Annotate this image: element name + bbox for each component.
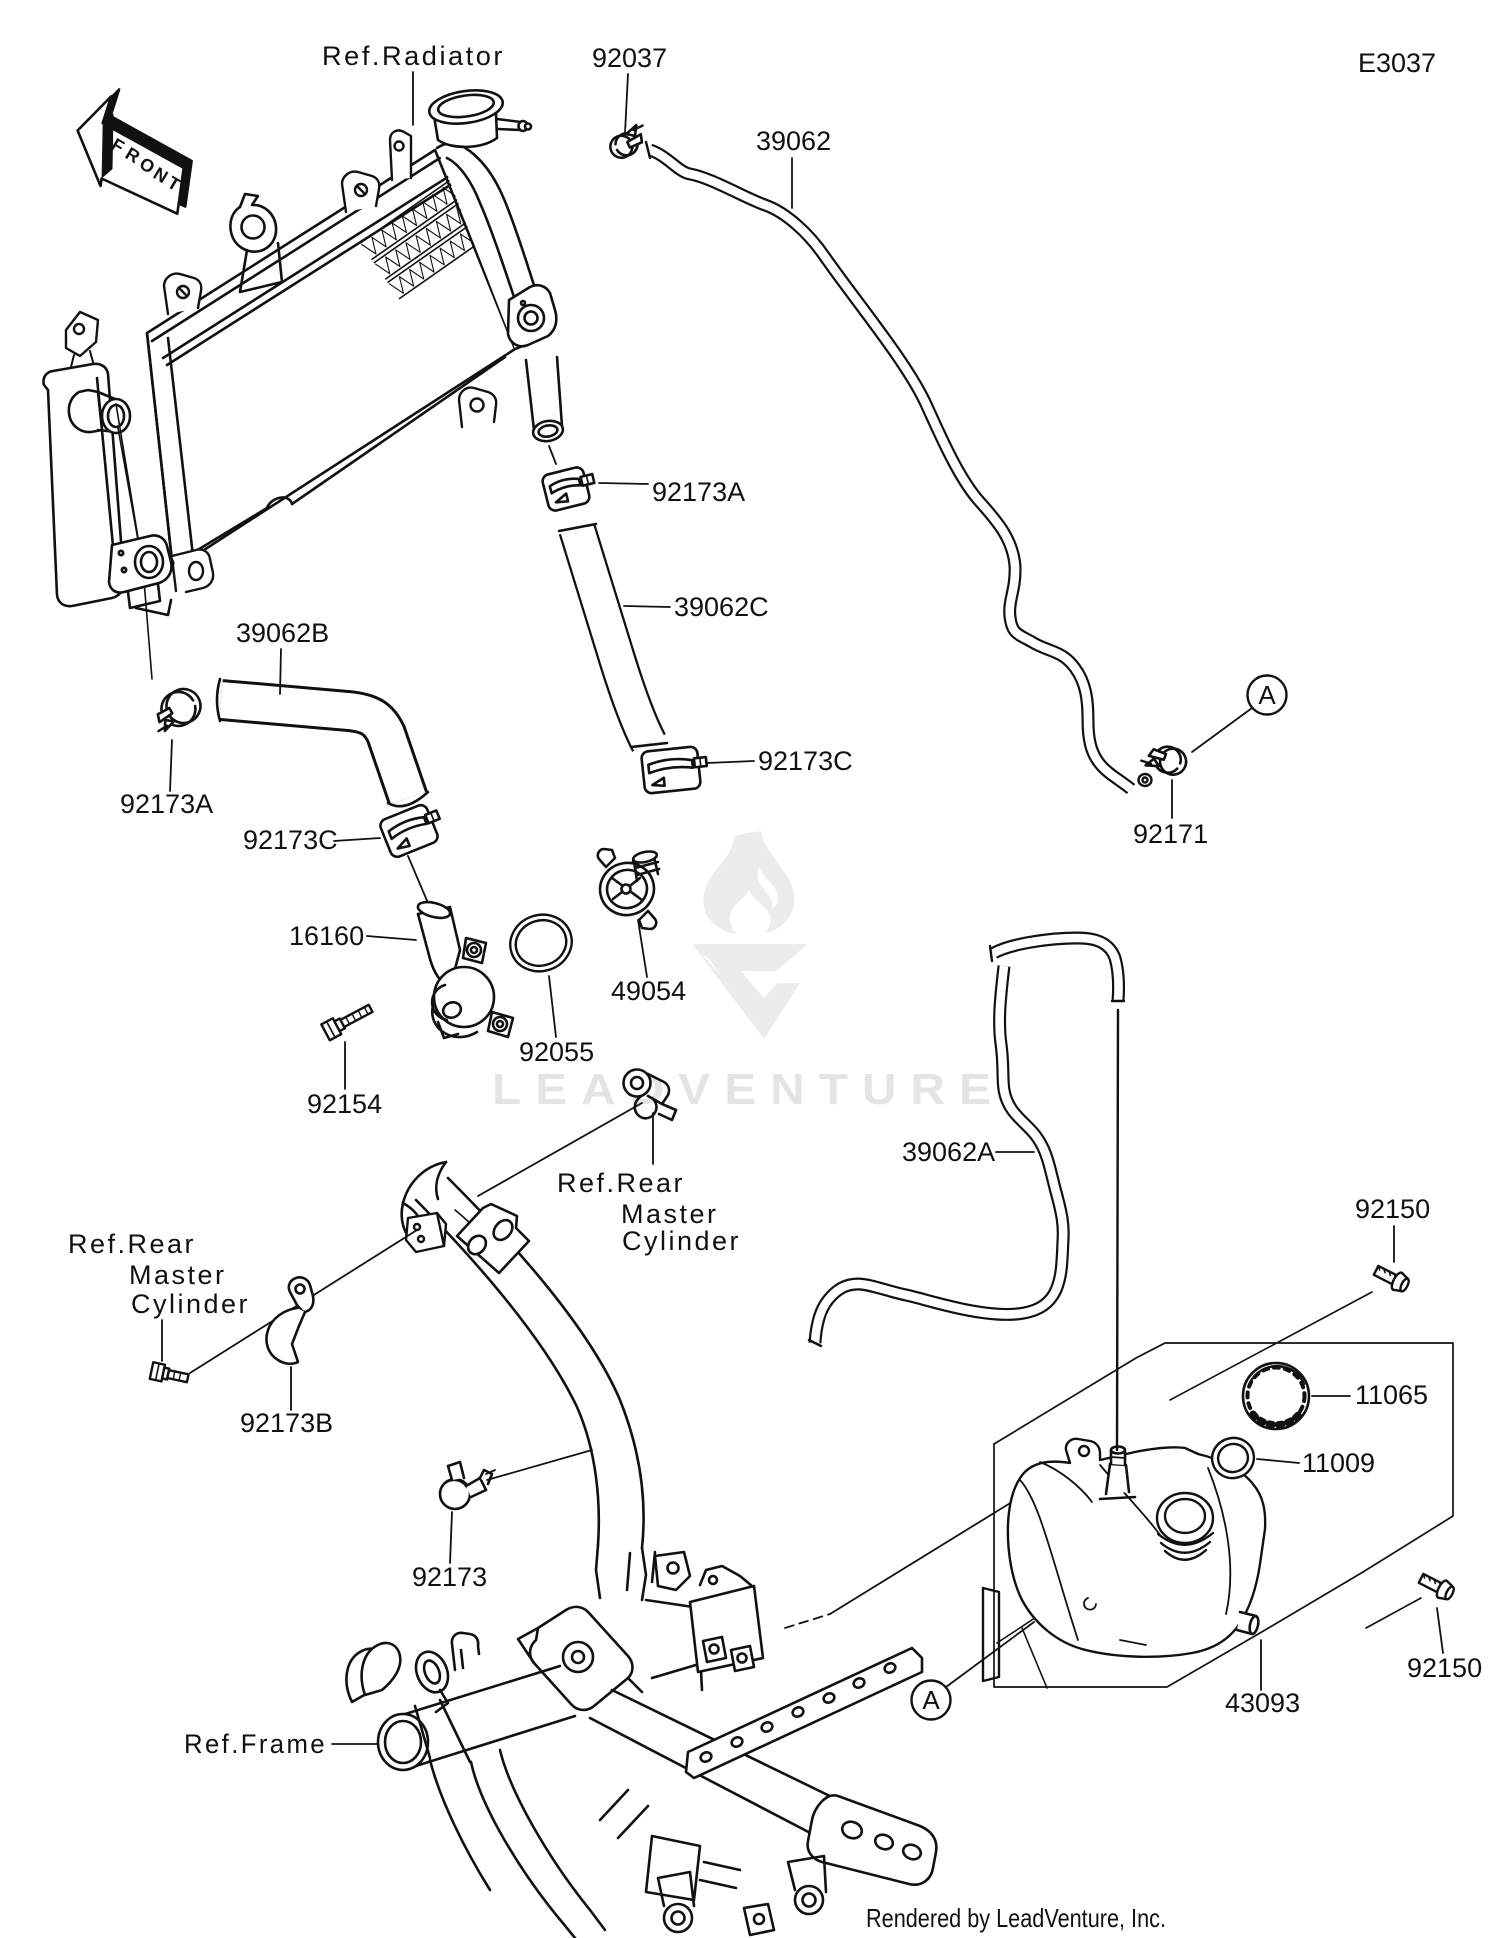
svg-text:92055: 92055 — [519, 1037, 594, 1067]
svg-text:92173C: 92173C — [243, 825, 338, 855]
svg-text:92173B: 92173B — [240, 1408, 333, 1438]
svg-text:Ref.Frame: Ref.Frame — [184, 1729, 327, 1759]
svg-text:Cylinder: Cylinder — [131, 1289, 250, 1319]
svg-text:A: A — [1258, 680, 1276, 710]
svg-text:92037: 92037 — [592, 43, 667, 73]
svg-text:Rendered by LeadVenture, Inc.: Rendered by LeadVenture, Inc. — [866, 1903, 1166, 1933]
svg-text:39062B: 39062B — [236, 618, 329, 648]
svg-text:49054: 49054 — [611, 976, 686, 1006]
svg-text:Master: Master — [621, 1199, 719, 1229]
svg-text:Master: Master — [129, 1260, 227, 1290]
svg-text:LEADVENTURE: LEADVENTURE — [492, 1065, 1005, 1114]
svg-text:92173A: 92173A — [652, 477, 745, 507]
svg-text:92150: 92150 — [1407, 1653, 1482, 1683]
svg-text:92173C: 92173C — [758, 746, 853, 776]
svg-text:39062C: 39062C — [674, 592, 769, 622]
svg-text:A: A — [922, 1685, 940, 1715]
svg-text:11065: 11065 — [1355, 1380, 1428, 1410]
svg-text:92150: 92150 — [1355, 1194, 1430, 1224]
svg-text:92154: 92154 — [307, 1089, 382, 1119]
svg-text:39062A: 39062A — [902, 1137, 995, 1167]
svg-text:Ref.Rear: Ref.Rear — [557, 1168, 685, 1198]
svg-text:Ref.Rear: Ref.Rear — [68, 1229, 196, 1259]
svg-text:92173A: 92173A — [120, 789, 213, 819]
svg-text:16160: 16160 — [289, 921, 364, 951]
svg-text:Cylinder: Cylinder — [622, 1226, 741, 1256]
svg-text:39062: 39062 — [756, 126, 831, 156]
svg-text:E3037: E3037 — [1358, 48, 1436, 78]
svg-text:Ref.Radiator: Ref.Radiator — [322, 41, 505, 71]
svg-text:11009: 11009 — [1302, 1448, 1375, 1478]
svg-text:43093: 43093 — [1225, 1688, 1300, 1718]
svg-text:92173: 92173 — [412, 1562, 487, 1592]
svg-text:92171: 92171 — [1133, 819, 1208, 849]
